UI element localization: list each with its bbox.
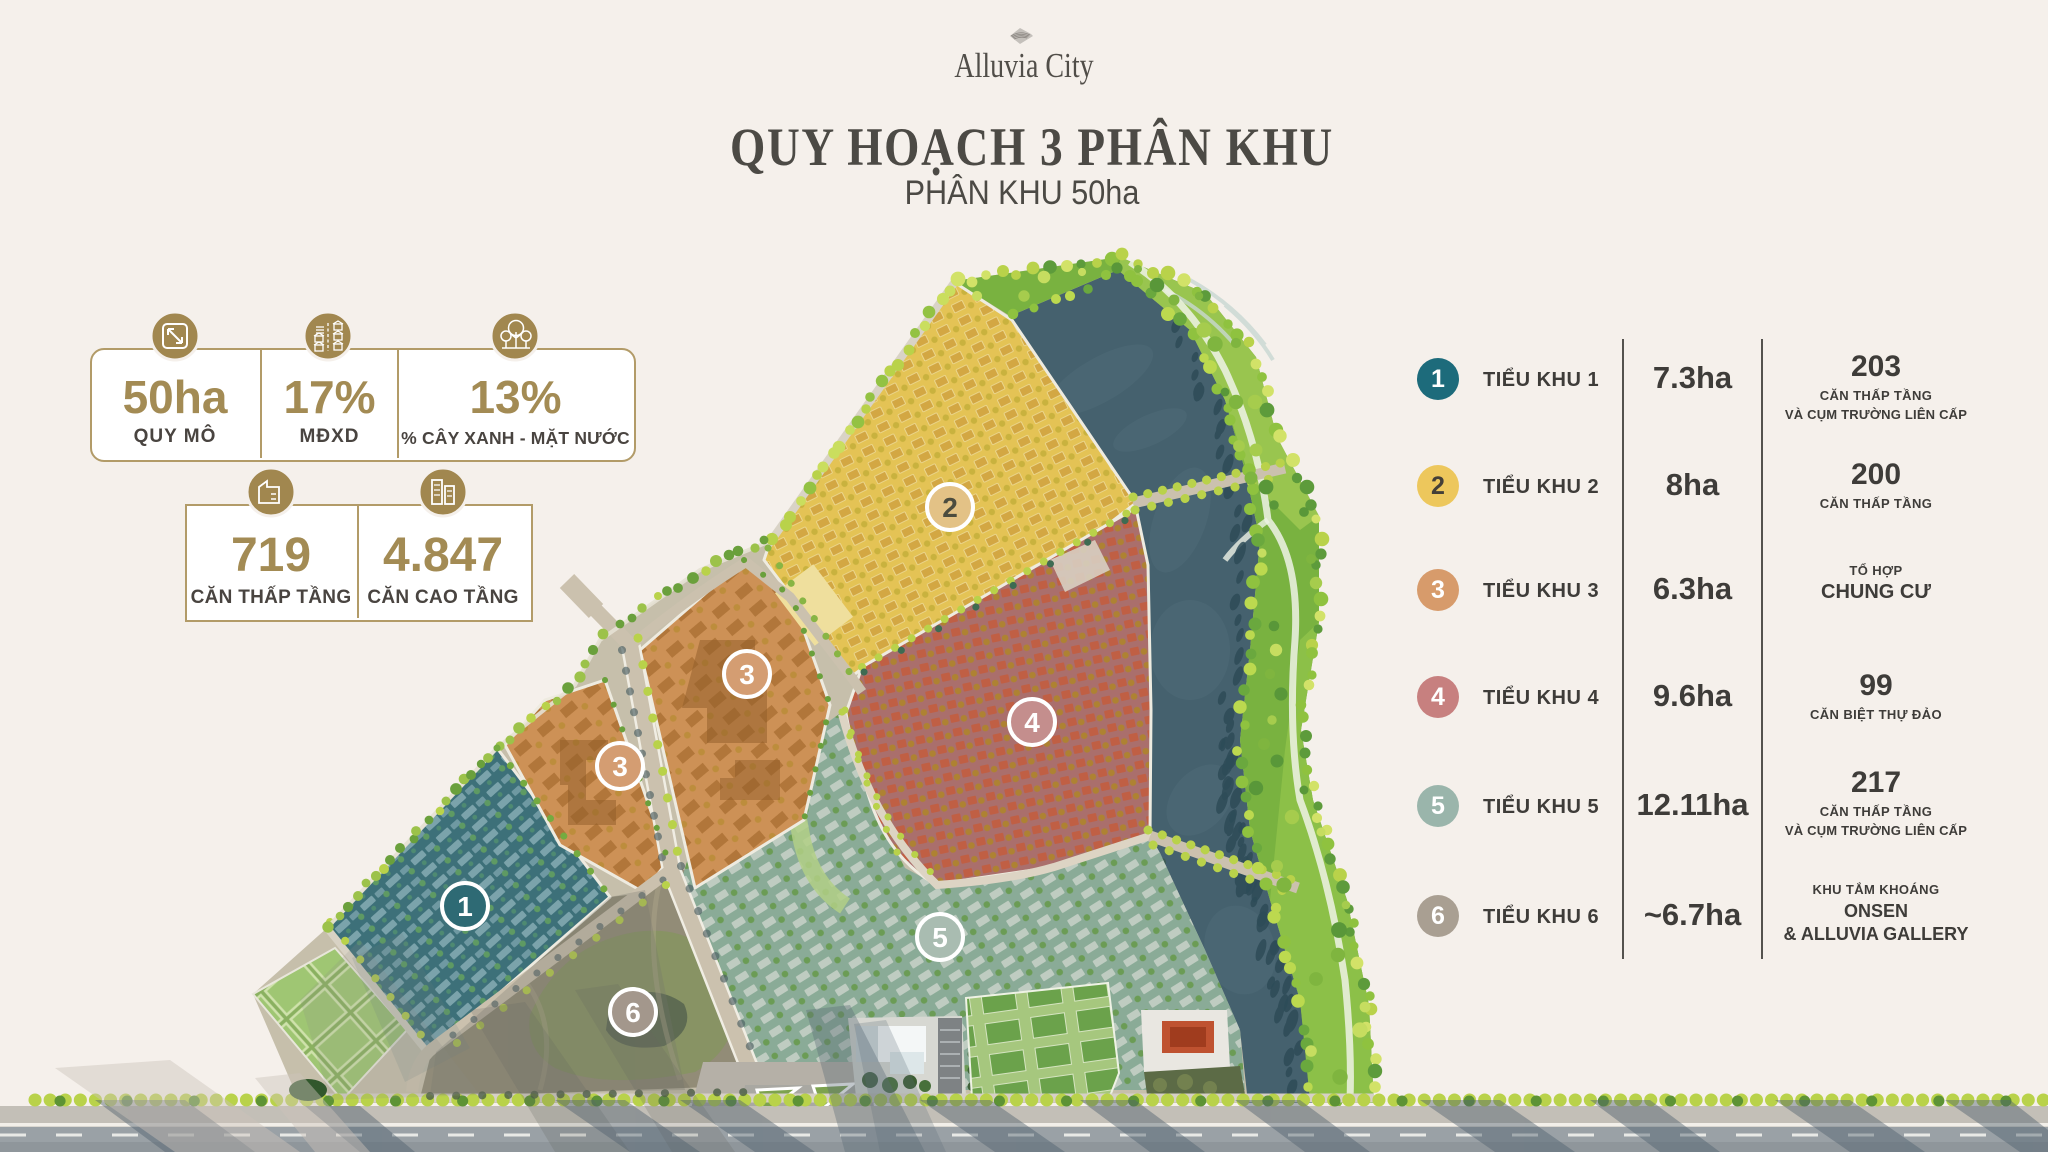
svg-text:6: 6	[625, 997, 641, 1028]
svg-text:1: 1	[457, 891, 473, 922]
svg-text:4: 4	[1024, 707, 1040, 738]
svg-text:3: 3	[612, 751, 628, 782]
svg-text:5: 5	[932, 922, 948, 953]
svg-text:2: 2	[942, 492, 958, 523]
svg-text:3: 3	[739, 659, 755, 690]
